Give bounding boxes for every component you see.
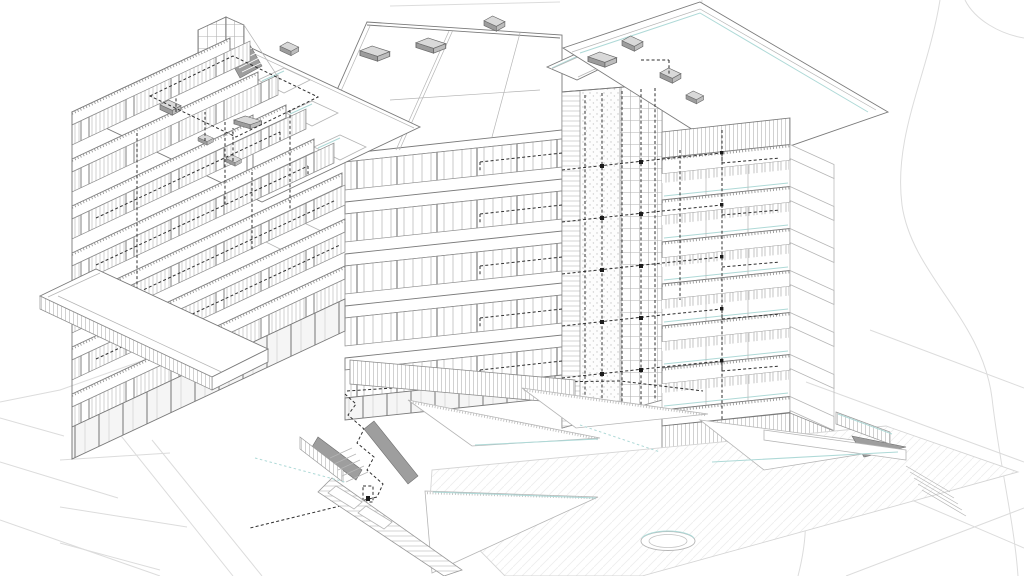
right-block-balconies: [662, 145, 790, 427]
axonometric-drawing: [0, 0, 1024, 576]
drawing-canvas: [0, 0, 1024, 576]
fountain-ring: [641, 531, 695, 550]
right-block-side-slabs: [790, 145, 834, 431]
service-core: [562, 84, 662, 428]
